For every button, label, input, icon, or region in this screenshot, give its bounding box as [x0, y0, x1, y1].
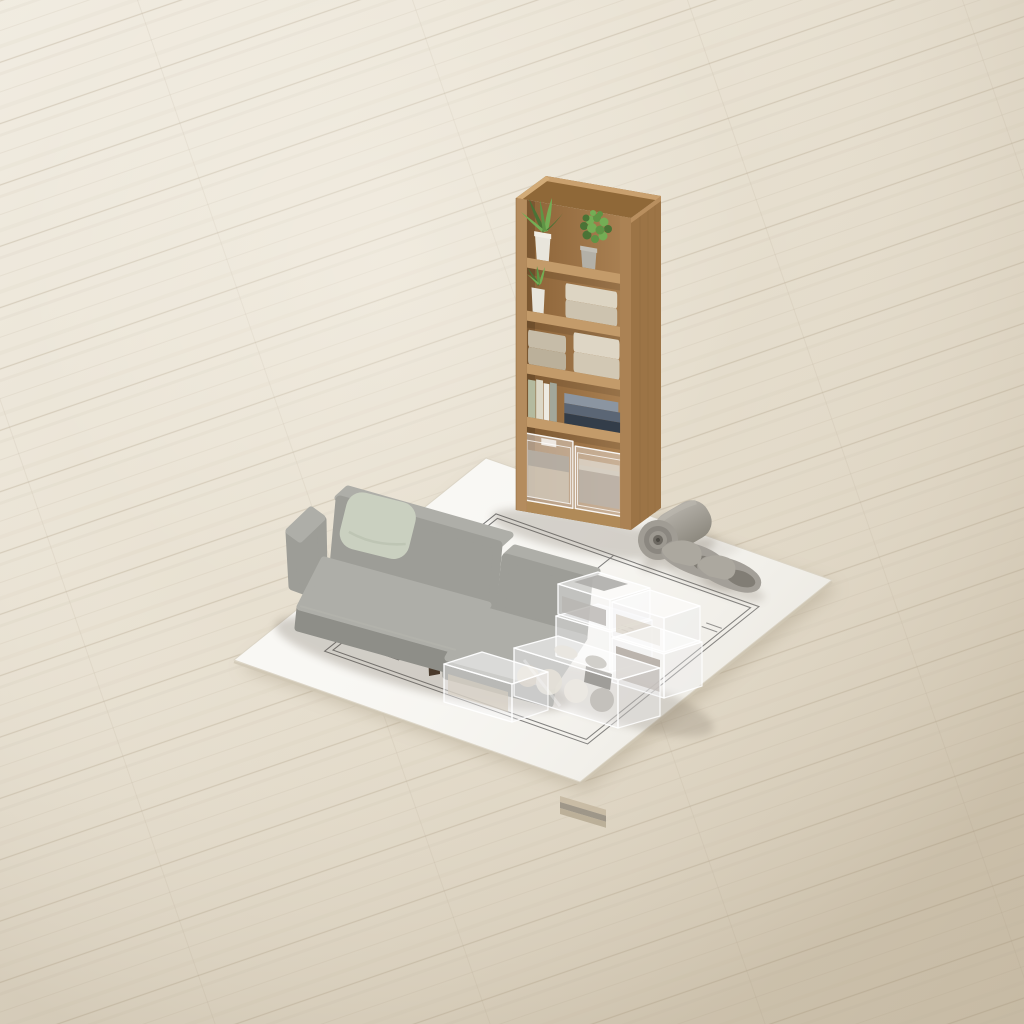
bookshelf: tall oak shelf unit [516, 176, 661, 530]
shelf-left-panel [516, 198, 527, 512]
scene: Isometric 3D render of miniature furnitu… [0, 0, 1024, 1024]
shelf-side-panel [631, 196, 661, 530]
shelf-front-face [516, 198, 631, 530]
shelf-right-panel-front [620, 216, 631, 530]
render-canvas: Isometric 3D render of miniature furnitu… [0, 0, 1024, 1024]
